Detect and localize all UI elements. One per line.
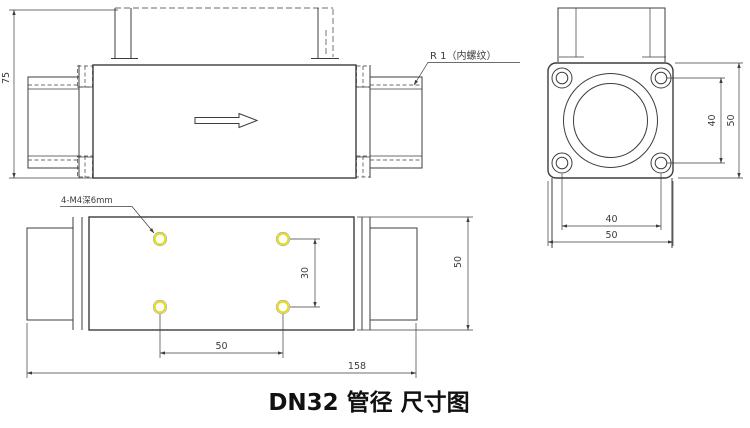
right-flange xyxy=(356,65,370,178)
dim-end-bolt-horizontal: 40 xyxy=(562,174,661,230)
right-pipe-end xyxy=(370,77,422,168)
bottom-right-flange xyxy=(362,217,370,330)
bottom-left-flange xyxy=(73,217,82,330)
dim-bottom-length-label: 158 xyxy=(348,361,366,372)
dim-side-height-label: 75 xyxy=(1,72,12,84)
end-top-pipe xyxy=(558,8,666,62)
dim-bottom-hole-vertical-label: 30 xyxy=(300,267,311,279)
thread-note: R 1（内螺纹） xyxy=(414,49,520,85)
bottom-left-pipe xyxy=(27,228,73,320)
bottom-view: 4-M4深6mm 30 50 158 50 xyxy=(27,196,473,378)
dim-end-overall-horizontal-label: 50 xyxy=(605,230,617,241)
bottom-body-outline xyxy=(89,217,354,330)
dim-bottom-width-label: 50 xyxy=(453,256,464,268)
side-view: 75 R 1（内螺纹） xyxy=(1,8,520,178)
dim-bottom-hole-horizontal-label: 50 xyxy=(215,341,227,352)
dim-end-bolt-horizontal-label: 40 xyxy=(605,214,617,225)
left-pipe-end xyxy=(28,77,79,168)
dimension-drawing: 75 R 1（内螺纹） 40 xyxy=(0,0,750,428)
end-view: 40 50 40 50 xyxy=(548,8,743,248)
drawing-title: DN32 管径 尺寸图 xyxy=(268,389,469,416)
dim-end-bolt-vertical-label: 40 xyxy=(707,114,718,126)
dim-end-overall-vertical-label: 50 xyxy=(726,114,737,126)
left-flange xyxy=(77,65,93,178)
technical-drawing-canvas: 75 R 1（内螺纹） 40 xyxy=(0,0,750,428)
tap-note-label: 4-M4深6mm xyxy=(61,196,113,206)
bracket-hidden-lines xyxy=(111,8,339,59)
dim-end-bolt-vertical: 40 xyxy=(667,78,725,163)
thread-note-label: R 1（内螺纹） xyxy=(430,49,497,62)
end-flange-outline xyxy=(548,63,673,178)
bottom-right-pipe xyxy=(370,228,417,320)
